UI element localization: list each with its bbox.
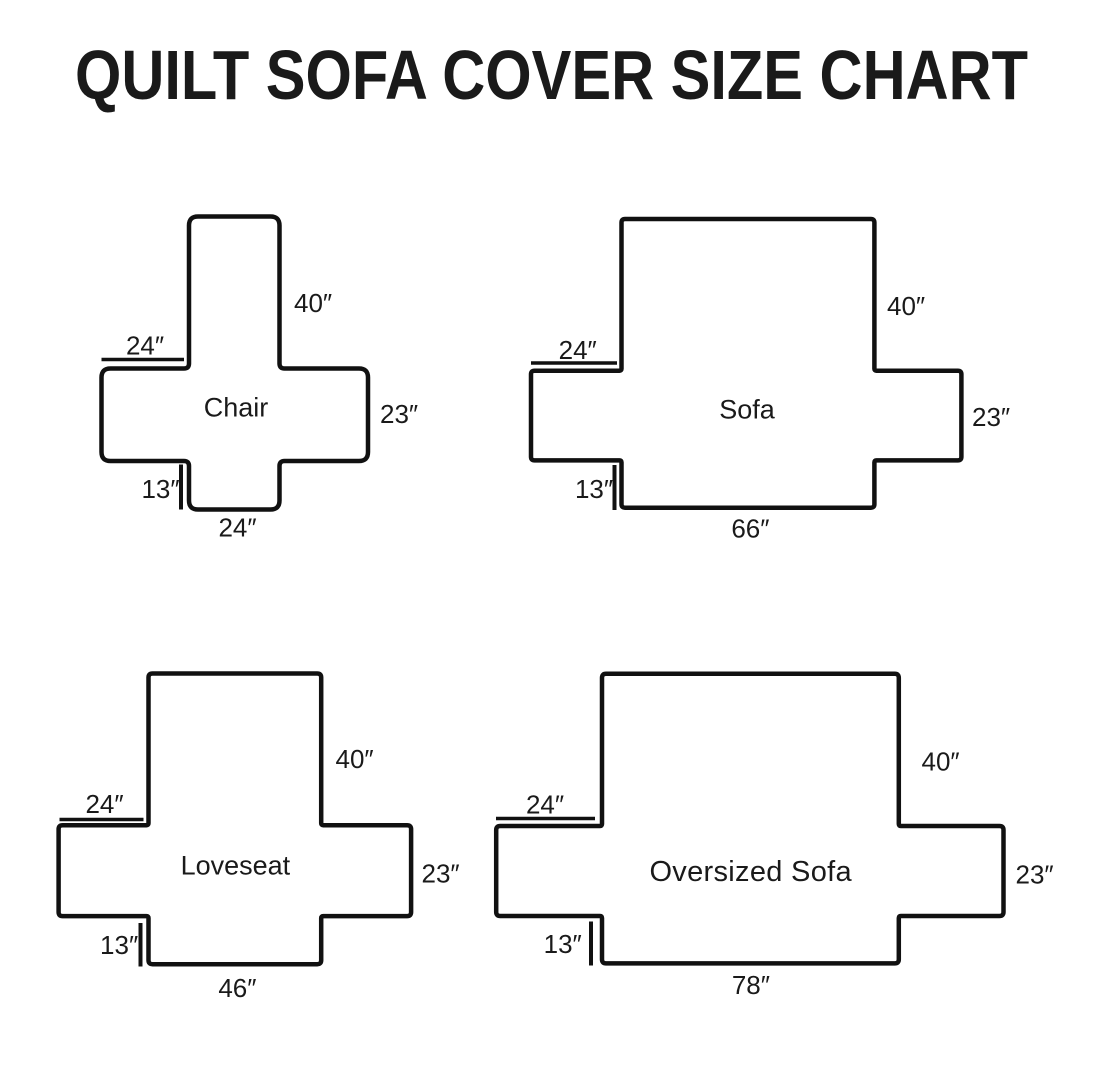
svg-text:QUILT SOFA COVER SIZE CHART: QUILT SOFA COVER SIZE CHART bbox=[75, 36, 1028, 114]
svg-text:13″: 13″ bbox=[100, 930, 138, 960]
svg-text:24″: 24″ bbox=[526, 790, 564, 820]
svg-text:Chair: Chair bbox=[204, 393, 269, 423]
svg-text:13″: 13″ bbox=[544, 929, 582, 959]
svg-text:24″: 24″ bbox=[218, 513, 256, 543]
svg-text:40″: 40″ bbox=[336, 744, 374, 774]
svg-text:Sofa: Sofa bbox=[719, 395, 776, 425]
svg-text:46″: 46″ bbox=[218, 973, 256, 1003]
svg-text:66″: 66″ bbox=[731, 514, 769, 544]
svg-text:23″: 23″ bbox=[422, 859, 460, 889]
svg-text:23″: 23″ bbox=[380, 399, 418, 429]
svg-text:40″: 40″ bbox=[922, 747, 960, 777]
svg-text:23″: 23″ bbox=[1016, 860, 1054, 890]
svg-text:24″: 24″ bbox=[559, 335, 597, 365]
svg-text:24″: 24″ bbox=[126, 331, 164, 361]
svg-text:23″: 23″ bbox=[972, 402, 1010, 432]
svg-text:Oversized Sofa: Oversized Sofa bbox=[649, 856, 852, 888]
svg-text:13″: 13″ bbox=[141, 474, 179, 504]
svg-text:78″: 78″ bbox=[732, 970, 770, 1000]
svg-text:40″: 40″ bbox=[887, 291, 925, 321]
svg-text:24″: 24″ bbox=[85, 789, 123, 819]
svg-text:Loveseat: Loveseat bbox=[181, 850, 291, 880]
svg-text:40″: 40″ bbox=[294, 288, 332, 318]
svg-text:13″: 13″ bbox=[575, 474, 613, 504]
